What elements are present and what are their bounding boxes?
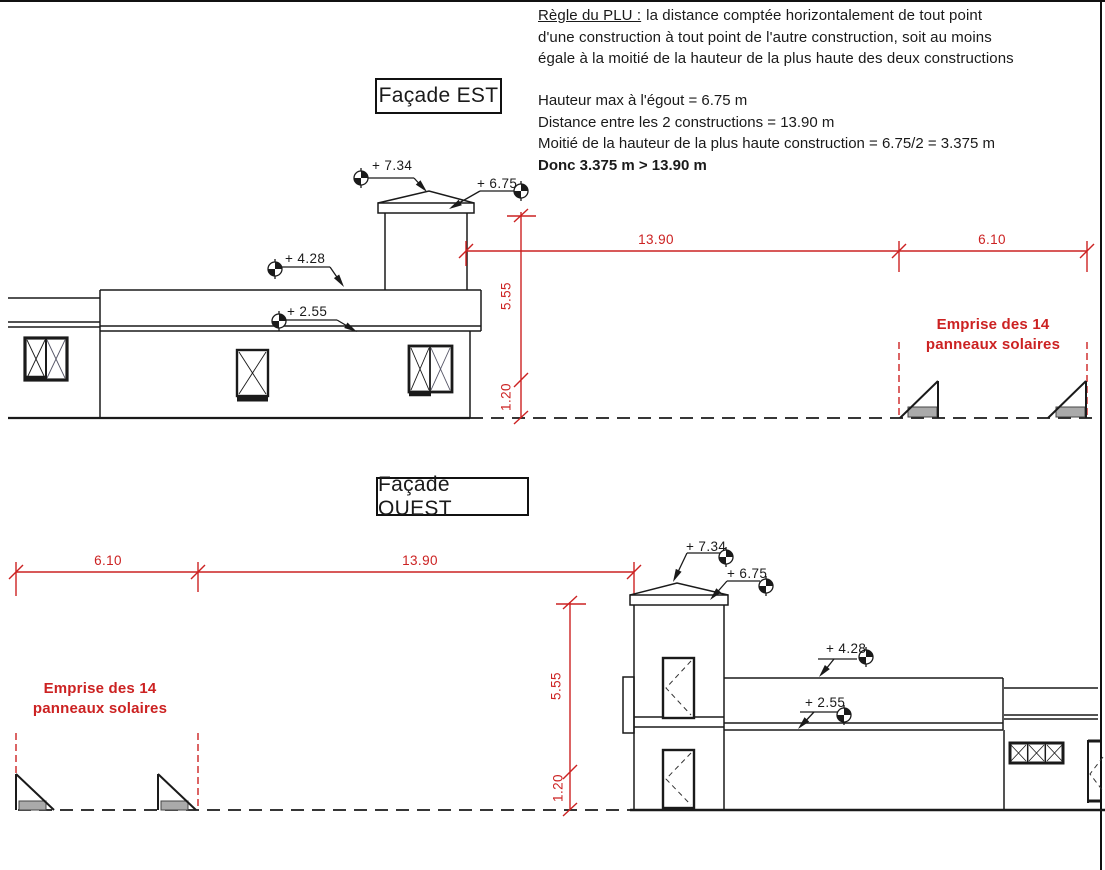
- est-tower-roof: [378, 191, 474, 203]
- est-level-label-675: + 6.75: [477, 176, 517, 191]
- plu-note-line1: Règle du PLU :la distance comptée horizo…: [538, 5, 1098, 27]
- solar-panel: [158, 774, 196, 810]
- est-solar-label-line2: panneaux solaires: [926, 336, 1060, 353]
- leader-arrowhead: [344, 323, 358, 335]
- est-solar-panels: [900, 381, 1086, 418]
- plu-note-heading: Règle du PLU :: [538, 7, 641, 24]
- facade-est-drawing: [8, 168, 1095, 424]
- ouest-main-building: [724, 678, 1004, 810]
- ouest-level-label-675: + 6.75: [727, 566, 767, 581]
- ouest-tower-window-upper: [663, 658, 694, 718]
- est-dim-610: 6.10: [978, 232, 1006, 247]
- ouest-dim-1390: 13.90: [402, 553, 438, 568]
- ouest-tower-window-lower: [663, 750, 694, 808]
- ouest-dim-555: 5.55: [549, 672, 564, 700]
- est-level-label-255: + 2.55: [287, 304, 327, 319]
- est-dim-555: 5.55: [499, 282, 514, 310]
- ouest-dim-120: 1.20: [551, 774, 566, 802]
- ouest-solar-panels: [16, 774, 196, 810]
- level-symbol: [354, 168, 368, 188]
- est-level-label-734: + 7.34: [372, 158, 412, 173]
- plu-stats: Hauteur max à l'égout = 6.75 m Distance …: [538, 90, 1098, 176]
- plu-note-text1: la distance comptée horizontalement de t…: [646, 7, 982, 24]
- ouest-strip-window: [1010, 743, 1063, 763]
- est-window-single: [237, 350, 268, 399]
- est-level-label-428: + 4.28: [285, 251, 325, 266]
- ouest-solar-label-line1: Emprise des 14: [44, 680, 157, 697]
- solar-panel: [16, 774, 54, 810]
- stat-conclusion: Donc 3.375 m > 13.90 m: [538, 155, 1098, 177]
- solar-panel: [900, 381, 938, 418]
- ouest-level-label-255: + 2.55: [805, 695, 845, 710]
- est-window-double: [409, 346, 452, 394]
- level-symbol: [268, 259, 282, 279]
- facade-ouest-title: Façade OUEST: [376, 477, 529, 516]
- facade-est-title: Façade EST: [375, 78, 502, 114]
- ouest-level-label-734: + 7.34: [686, 539, 726, 554]
- est-left-annex: [8, 298, 100, 380]
- plu-note-line3: égale à la moitié de la hauteur de la pl…: [538, 48, 1098, 70]
- level-symbol: [272, 311, 286, 331]
- solar-panel: [1048, 381, 1086, 418]
- est-annex-window: [25, 338, 67, 380]
- ouest-dim-610: 6.10: [94, 553, 122, 568]
- stat-hauteur-max: Hauteur max à l'égout = 6.75 m: [538, 90, 1098, 112]
- plu-note: Règle du PLU :la distance comptée horizo…: [538, 5, 1098, 70]
- stat-distance: Distance entre les 2 constructions = 13.…: [538, 112, 1098, 134]
- leader-arrowhead: [670, 569, 681, 583]
- est-dim-120: 1.20: [499, 383, 514, 411]
- stat-moitie: Moitié de la hauteur de la plus haute co…: [538, 133, 1098, 155]
- ouest-tower: [623, 583, 728, 810]
- ouest-tower-roof: [630, 583, 728, 595]
- ouest-solar-label-line2: panneaux solaires: [33, 700, 167, 717]
- architectural-sheet: { "note": { "heading": "Règle du PLU :",…: [0, 0, 1105, 870]
- est-dim-1390: 13.90: [638, 232, 674, 247]
- plu-note-line2: d'une construction à tout point de l'aut…: [538, 27, 1098, 49]
- leader-arrowhead: [334, 275, 347, 289]
- ouest-right-annex: [1004, 688, 1103, 803]
- ouest-tower-ledge: [623, 677, 634, 733]
- est-solar-label-line1: Emprise des 14: [937, 316, 1050, 333]
- ouest-level-label-428: + 4.28: [826, 641, 866, 656]
